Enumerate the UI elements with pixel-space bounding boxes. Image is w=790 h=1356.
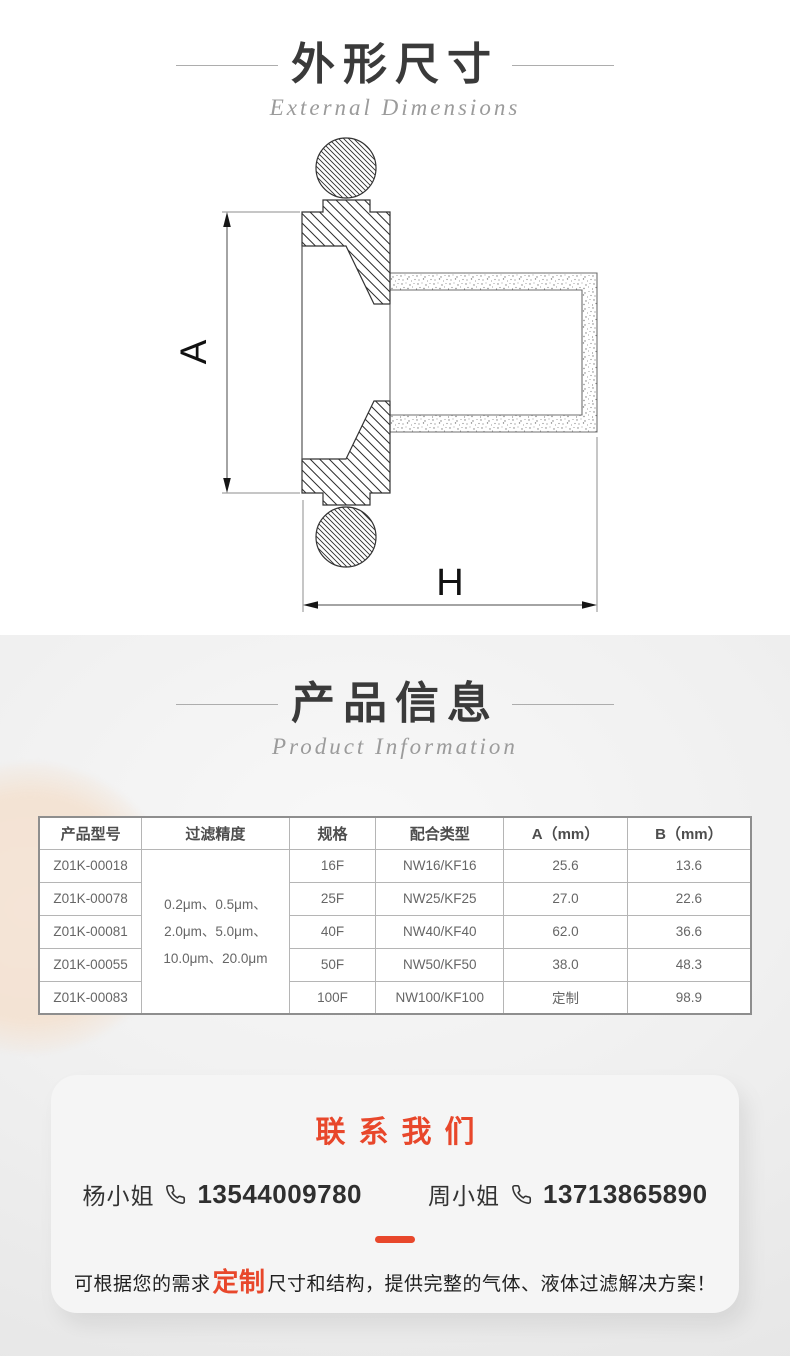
table-header-row: 产品型号 过滤精度 规格 配合类型 A（mm） B（mm） <box>39 817 751 849</box>
cell-a: 38.0 <box>504 948 628 981</box>
phone-icon <box>165 1184 186 1205</box>
cell-match: NW40/KF40 <box>376 915 504 948</box>
flange-lower-section <box>302 401 390 505</box>
cell-spec: 100F <box>289 981 376 1014</box>
technical-drawing: A H <box>0 130 790 635</box>
contact-title: 联系我们 <box>51 1075 739 1151</box>
cell-spec: 50F <box>289 948 376 981</box>
phone-icon <box>511 1184 532 1205</box>
cell-filter-precision: 0.2μm、0.5μm、 2.0μm、5.0μm、 10.0μm、20.0μm <box>142 849 290 1014</box>
filter-tube <box>390 273 597 432</box>
col-header-a: A（mm） <box>504 817 628 849</box>
contact-phone: 13713865890 <box>543 1179 708 1210</box>
contact-phone: 13544009780 <box>197 1179 362 1210</box>
contact-zhou: 周小姐 13713865890 <box>428 1177 708 1211</box>
table-row: Z01K-00018 0.2μm、0.5μm、 2.0μm、5.0μm、 10.… <box>39 849 751 882</box>
product-detail-page: 外形尺寸 External Dimensions <box>0 0 790 1356</box>
flange-upper-section <box>302 200 390 304</box>
contact-name: 杨小姐 <box>82 1177 154 1211</box>
external-dimensions-section: 外形尺寸 External Dimensions <box>0 0 790 635</box>
dimension-a <box>222 212 300 493</box>
section-title: 产品信息 <box>291 681 499 727</box>
contacts-row: 杨小姐 13544009780 周小姐 13713865890 <box>51 1177 739 1211</box>
section-title: 外形尺寸 <box>291 42 499 88</box>
cell-a: 25.6 <box>504 849 628 882</box>
cell-b: 13.6 <box>627 849 751 882</box>
section-heading: 外形尺寸 <box>0 42 790 88</box>
cell-spec: 25F <box>289 882 376 915</box>
cell-b: 98.9 <box>627 981 751 1014</box>
heading-rule-right <box>512 704 614 705</box>
cell-a: 62.0 <box>504 915 628 948</box>
heading-rule-left <box>176 65 278 66</box>
col-header-precision: 过滤精度 <box>142 817 290 849</box>
contact-name: 周小姐 <box>428 1177 500 1211</box>
dimension-h-label: H <box>436 562 463 604</box>
contact-card: 联系我们 杨小姐 13544009780 周小姐 13713865890 <box>51 1075 739 1313</box>
note-highlight: 定制 <box>210 1267 267 1297</box>
dimension-a-label: A <box>173 339 214 364</box>
cell-model: Z01K-00083 <box>39 981 142 1014</box>
col-header-b: B（mm） <box>627 817 751 849</box>
cell-model: Z01K-00055 <box>39 948 142 981</box>
section-subtitle: External Dimensions <box>0 95 790 121</box>
cell-model: Z01K-00081 <box>39 915 142 948</box>
cell-a: 定制 <box>504 981 628 1014</box>
red-divider <box>375 1236 415 1243</box>
cell-b: 36.6 <box>627 915 751 948</box>
cell-model: Z01K-00078 <box>39 882 142 915</box>
cell-match: NW50/KF50 <box>376 948 504 981</box>
cell-spec: 16F <box>289 849 376 882</box>
section-heading: 产品信息 <box>0 681 790 727</box>
product-spec-table: 产品型号 过滤精度 规格 配合类型 A（mm） B（mm） Z01K-00018… <box>38 816 752 1015</box>
cell-a: 27.0 <box>504 882 628 915</box>
col-header-spec: 规格 <box>289 817 376 849</box>
contact-yang: 杨小姐 13544009780 <box>82 1177 362 1211</box>
oring-bottom <box>316 507 376 567</box>
note-prefix: 可根据您的需求 <box>74 1274 211 1295</box>
section-subtitle: Product Information <box>0 734 790 760</box>
note-suffix: 尺寸和结构，提供完整的气体、液体过滤解决方案！ <box>268 1274 717 1295</box>
cell-match: NW100/KF100 <box>376 981 504 1014</box>
heading-rule-right <box>512 65 614 66</box>
cell-match: NW16/KF16 <box>376 849 504 882</box>
col-header-model: 产品型号 <box>39 817 142 849</box>
cell-spec: 40F <box>289 915 376 948</box>
heading-rule-left <box>176 704 278 705</box>
col-header-match: 配合类型 <box>376 817 504 849</box>
cell-match: NW25/KF25 <box>376 882 504 915</box>
cell-b: 48.3 <box>627 948 751 981</box>
product-info-section: 产品信息 Product Information 产品型号 过滤精度 规格 配合… <box>0 635 790 1356</box>
custom-note: 可根据您的需求定制尺寸和结构，提供完整的气体、液体过滤解决方案！ <box>51 1261 739 1298</box>
oring-top <box>316 138 376 198</box>
cell-model: Z01K-00018 <box>39 849 142 882</box>
cell-b: 22.6 <box>627 882 751 915</box>
